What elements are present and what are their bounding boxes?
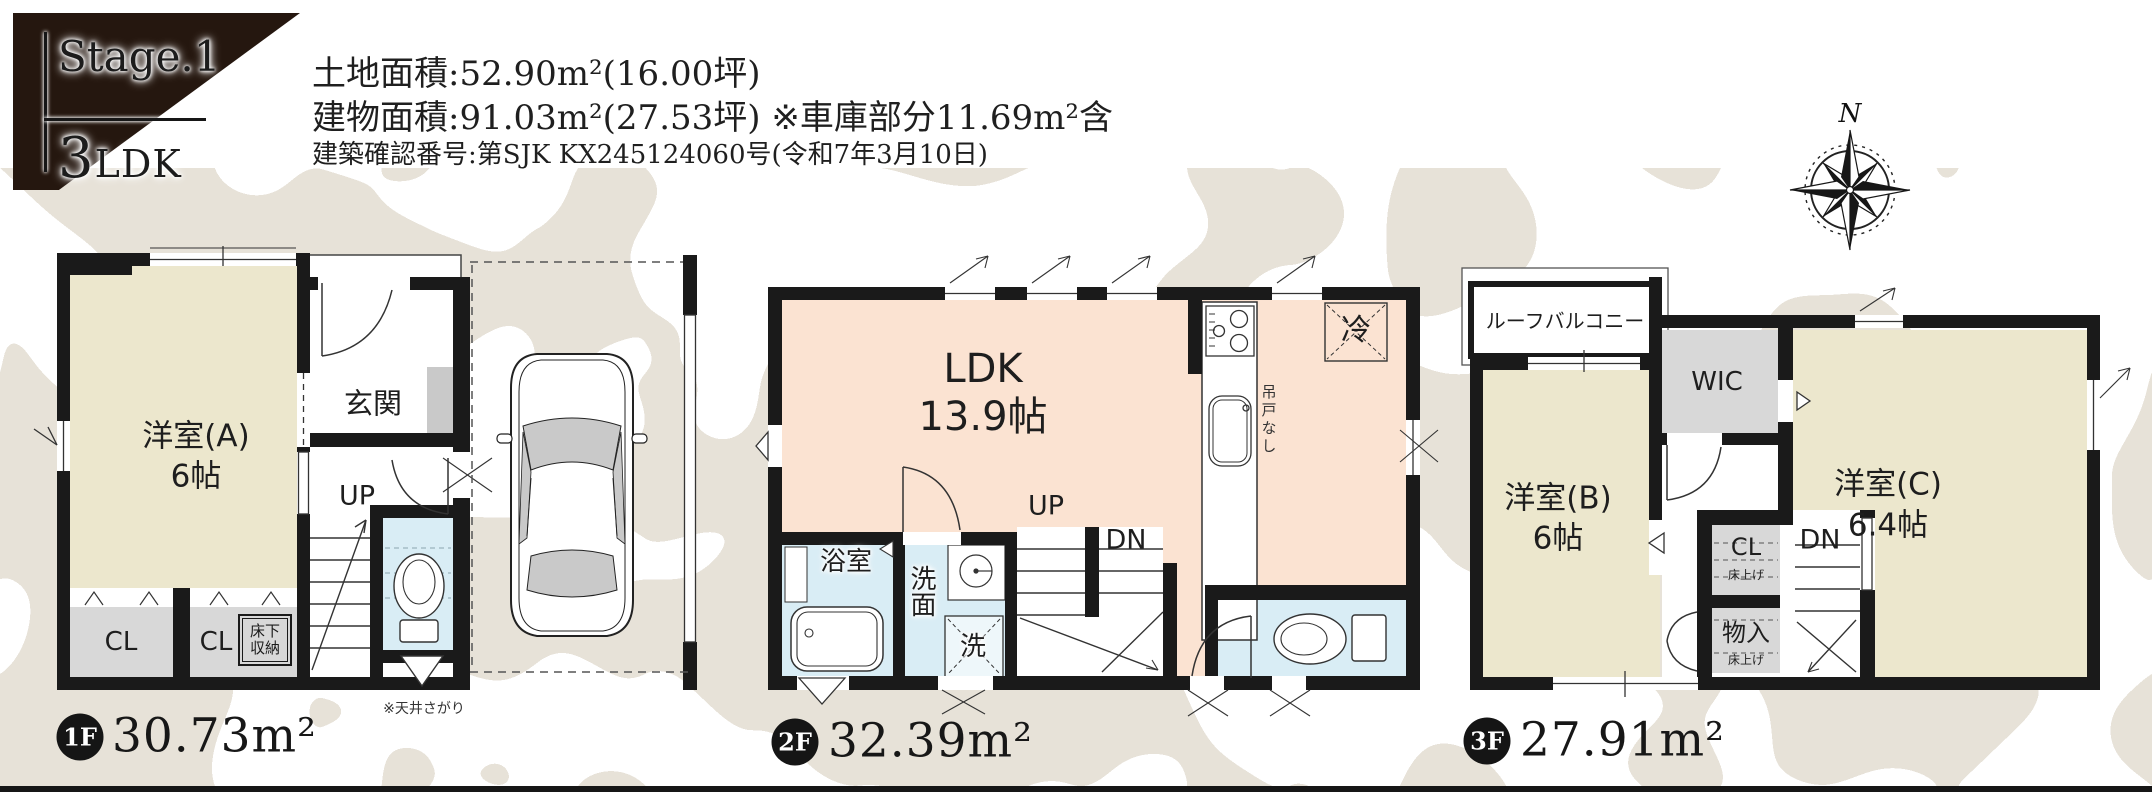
label-room-c-size: 6.4帖 <box>1848 511 1928 542</box>
floor-badge-3f: 3F <box>1464 718 1511 765</box>
label-dn-2f: DN <box>1106 527 1147 554</box>
floor-area-1f: 30.73m² <box>112 709 317 764</box>
floor-plan-sheet: N Stage.1 3LDK 土地面積:52.90m²(16.00坪) 建物面積… <box>0 0 2152 792</box>
land-area-text: 土地面積:52.90m²(16.00坪) <box>312 46 761 95</box>
building-area-text: 建物面積:91.03m²(27.53坪) ※車庫部分11.69m²含 <box>312 90 1113 139</box>
washbasin-icon <box>960 555 992 587</box>
label-bath: 浴室 <box>820 549 872 575</box>
label-room-c: 洋室(C) <box>1834 470 1942 501</box>
label-washer: 洗 <box>960 634 986 660</box>
compass-north-label: N <box>1838 99 1863 129</box>
label-cl-1: CL <box>105 629 138 655</box>
badge-horizontal-rule <box>44 118 206 121</box>
car-icon <box>497 354 647 636</box>
label-cl-3f: CL <box>1731 535 1761 559</box>
label-storage: 物入 <box>1722 621 1770 645</box>
bathtub-icon <box>791 607 883 671</box>
label-storage-note: 床上げ <box>1728 654 1764 666</box>
floor-1f-drawing <box>34 246 697 690</box>
label-room-a-size: 6帖 <box>171 462 222 493</box>
label-ceiling-note: ※天井さがり <box>383 702 465 716</box>
underfloor-storage-inner: 床下 収納 <box>242 618 288 662</box>
label-cl-2: CL <box>200 629 233 655</box>
toilet-icon-1f <box>394 554 444 642</box>
label-room-b-size: 6帖 <box>1533 524 1584 555</box>
floor-2f-drawing <box>756 256 1438 716</box>
label-up-2f: UP <box>1028 493 1064 520</box>
compass-icon: N <box>1790 99 1910 250</box>
stage-title: Stage.1 <box>58 32 221 81</box>
label-cl-note: 床上げ <box>1728 569 1764 581</box>
label-dn-3f: DN <box>1800 527 1841 554</box>
label-room-b: 洋室(B) <box>1504 484 1611 515</box>
label-no-cupboard: 吊戸なし <box>1261 384 1276 456</box>
label-ldk-size: 13.9帖 <box>918 397 1047 437</box>
floor-badge-1f-text: 1F <box>63 723 97 752</box>
toilet-icon-2f <box>1274 614 1386 664</box>
label-up-1f: UP <box>339 483 375 510</box>
label-genkan: 玄関 <box>344 390 402 419</box>
layout-type: 3LDK <box>58 126 182 191</box>
label-underfloor-1: 床下 <box>250 624 280 640</box>
floor-badge-2f: 2F <box>772 719 819 766</box>
badge-vertical-rule <box>44 32 47 172</box>
floor-badge-1f: 1F <box>57 714 104 761</box>
floor-badge-3f-text: 3F <box>1470 727 1504 756</box>
stove-icon <box>1206 306 1254 356</box>
floor-area-2f: 32.39m² <box>828 714 1033 769</box>
floor-area-3f: 27.91m² <box>1520 713 1725 768</box>
floor-badge-2f-text: 2F <box>778 728 812 757</box>
label-wic: WIC <box>1691 369 1743 395</box>
kitchen-sink-icon <box>1209 396 1251 466</box>
label-roof-balcony: ルーフバルコニー <box>1486 311 1644 331</box>
bottom-divider-bar <box>0 786 2152 792</box>
underfloor-storage-box: 床下 収納 <box>238 614 292 666</box>
label-underfloor-2: 収納 <box>250 641 280 657</box>
label-ldk: LDK <box>943 349 1022 389</box>
permit-number-text: 建築確認番号:第SJK KX245124060号(令和7年3月10日) <box>312 134 988 171</box>
label-washroom: 洗面 <box>908 565 934 617</box>
label-fridge: 冷 <box>1341 316 1371 346</box>
label-room-a: 洋室(A) <box>142 422 249 453</box>
